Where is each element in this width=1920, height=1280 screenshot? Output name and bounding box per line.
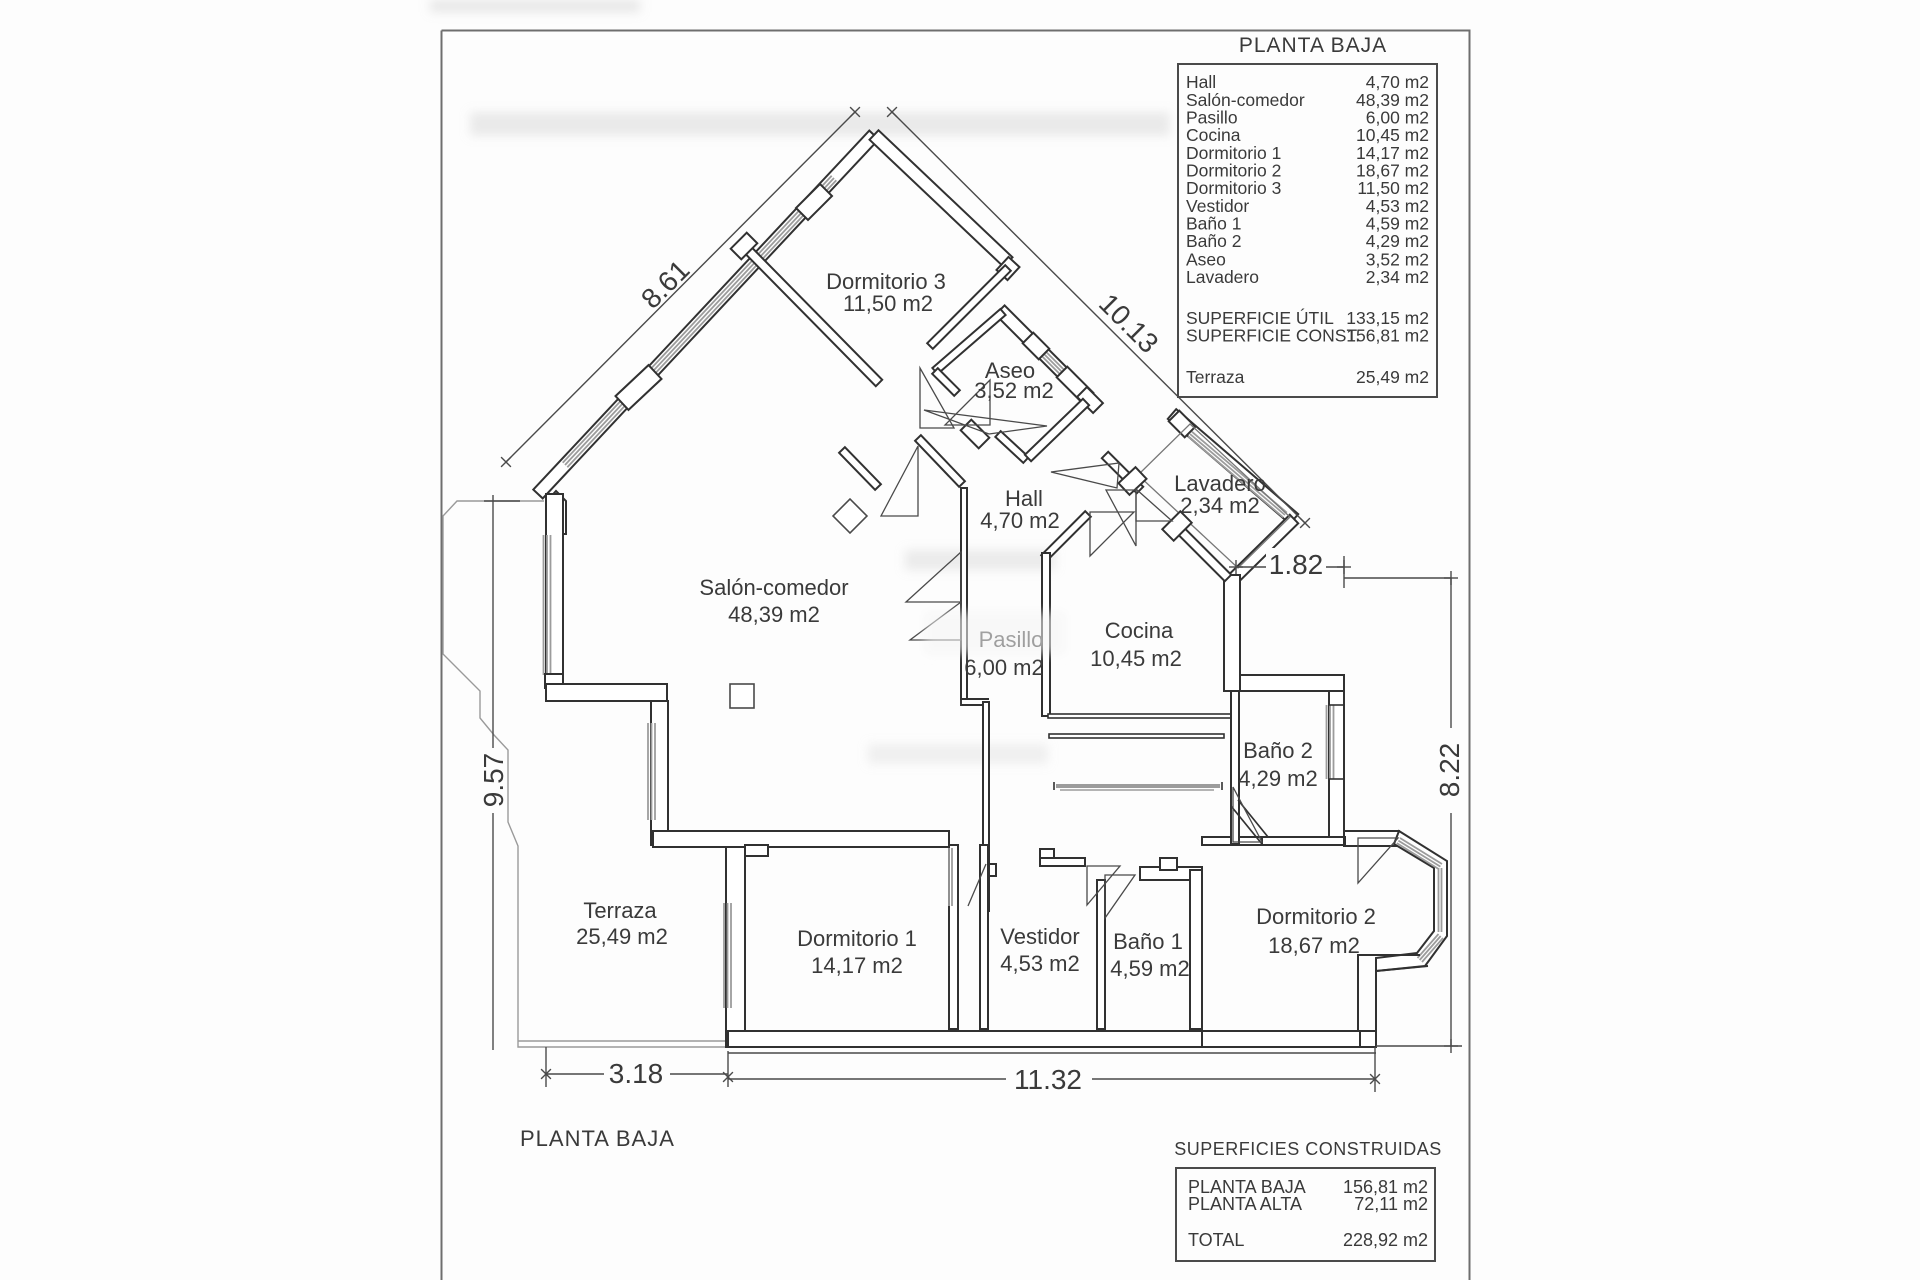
svg-text:25,49 m2: 25,49 m2 [1356, 367, 1429, 387]
svg-text:3.18: 3.18 [609, 1058, 664, 1089]
svg-text:TOTAL: TOTAL [1188, 1230, 1244, 1250]
svg-text:156,81 m2: 156,81 m2 [1346, 326, 1429, 346]
svg-text:4,29 m2: 4,29 m2 [1366, 231, 1429, 251]
svg-text:4,53 m2: 4,53 m2 [1000, 951, 1080, 976]
svg-text:25,49 m2: 25,49 m2 [576, 924, 668, 949]
svg-text:PLANTA BAJA: PLANTA BAJA [520, 1126, 675, 1151]
svg-text:3,52 m2: 3,52 m2 [974, 378, 1054, 403]
svg-text:Dormitorio 1: Dormitorio 1 [797, 926, 917, 951]
svg-text:14,17 m2: 14,17 m2 [811, 953, 903, 978]
svg-text:Hall: Hall [1186, 72, 1216, 92]
svg-text:48,39 m2: 48,39 m2 [728, 602, 820, 627]
svg-text:Cocina: Cocina [1105, 618, 1174, 643]
svg-text:Cocina: Cocina [1186, 125, 1241, 145]
svg-text:Terraza: Terraza [583, 898, 657, 923]
svg-text:Baño 2: Baño 2 [1243, 738, 1313, 763]
svg-text:11,50 m2: 11,50 m2 [1357, 178, 1429, 198]
svg-text:9.57: 9.57 [478, 753, 509, 808]
svg-text:4,59 m2: 4,59 m2 [1110, 956, 1190, 981]
svg-text:4,29 m2: 4,29 m2 [1238, 766, 1318, 791]
svg-text:SUPERFICIES CONSTRUIDAS: SUPERFICIES CONSTRUIDAS [1174, 1139, 1442, 1159]
svg-text:4,70 m2: 4,70 m2 [1366, 72, 1429, 92]
svg-text:1.82: 1.82 [1269, 549, 1324, 580]
svg-text:Baño 2: Baño 2 [1186, 231, 1241, 251]
svg-text:Vestidor: Vestidor [1000, 924, 1080, 949]
svg-text:11.32: 11.32 [1014, 1064, 1082, 1095]
svg-text:2,34 m2: 2,34 m2 [1180, 493, 1260, 518]
svg-text:Dormitorio 3: Dormitorio 3 [1186, 178, 1281, 198]
svg-text:228,92 m2: 228,92 m2 [1343, 1230, 1428, 1250]
svg-text:10,45 m2: 10,45 m2 [1356, 125, 1429, 145]
svg-text:11,50 m2: 11,50 m2 [843, 291, 933, 316]
svg-text:SUPERFICIE CONST.: SUPERFICIE CONST. [1186, 326, 1360, 346]
svg-text:Terraza: Terraza [1186, 367, 1245, 387]
svg-text:6,00 m2: 6,00 m2 [964, 655, 1044, 680]
svg-text:10,45 m2: 10,45 m2 [1090, 646, 1182, 671]
svg-text:Lavadero: Lavadero [1186, 267, 1259, 287]
svg-text:4,70 m2: 4,70 m2 [980, 508, 1060, 533]
svg-text:8.22: 8.22 [1434, 743, 1465, 798]
svg-text:72,11 m2: 72,11 m2 [1354, 1194, 1428, 1214]
svg-text:PLANTA BAJA: PLANTA BAJA [1239, 34, 1387, 57]
svg-text:2,34 m2: 2,34 m2 [1366, 267, 1429, 287]
svg-text:18,67 m2: 18,67 m2 [1268, 933, 1360, 958]
svg-text:Salón-comedor: Salón-comedor [699, 575, 848, 600]
svg-text:PLANTA ALTA: PLANTA ALTA [1188, 1194, 1302, 1214]
svg-text:Dormitorio 2: Dormitorio 2 [1256, 904, 1376, 929]
svg-text:Baño 1: Baño 1 [1113, 929, 1183, 954]
